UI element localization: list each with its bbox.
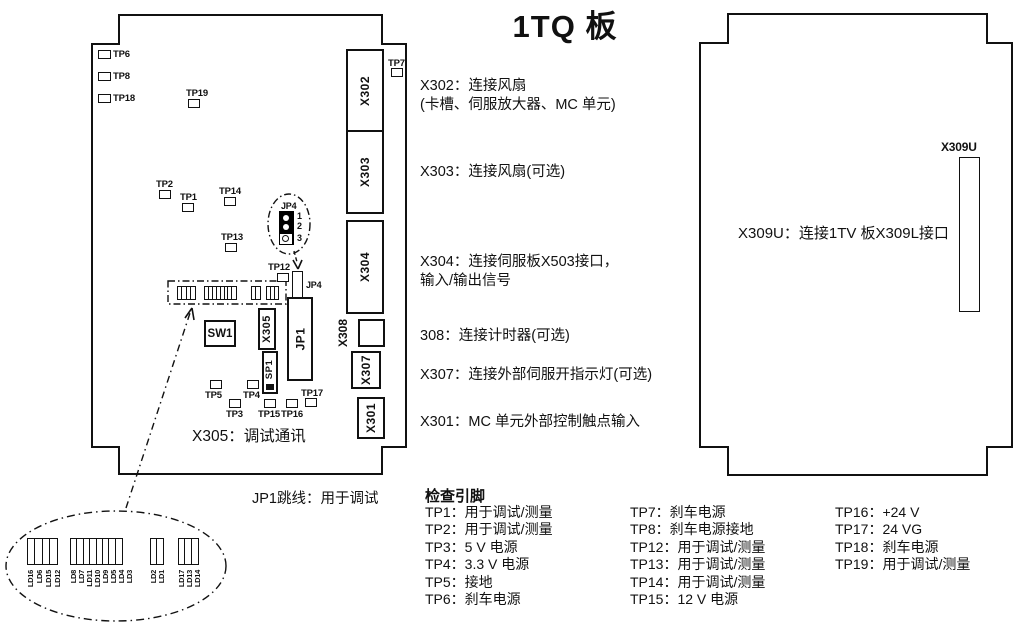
tp1-pad [182,203,194,212]
check-pin-item: TP18：刹车电源 [835,539,970,556]
tp19-label: TP19 [186,88,208,99]
tp6-label: TP6 [113,49,130,60]
led-detail-group-3 [150,538,164,565]
check-pin-item: TP19：用于调试/测量 [835,556,970,573]
led-label: LD3 [125,570,135,600]
annotation-x301-line1: X301：MC 单元外部控制触点输入 [420,413,640,432]
connector-x304-label: X304 [358,252,372,282]
check-pins-col3: TP16：+24 V TP17：24 VG TP18：刹车电源 TP19：用于调… [835,504,970,574]
annotation-x308: 308：连接计时器(可选) [420,327,570,346]
led-label: LD1 [157,570,167,600]
jp4-pin3-dot [282,235,289,242]
tp4-pad [247,380,259,389]
led-cell [49,538,58,565]
component-sw1: SW1 [204,320,236,347]
led-strip-group-4 [266,286,279,300]
led-cell [190,286,196,300]
check-pin-item: TP12：用于调试/测量 [630,539,765,556]
tp7-pad [391,68,403,77]
tp17-pad [305,398,317,407]
annotation-x307-line1: X307：连接外部伺服开指示灯(可选) [420,366,652,385]
tp2-pad [159,190,171,199]
connector-x305-label: X305 [261,315,273,343]
led-strip-group-3 [251,286,261,300]
annotation-x301: X301：MC 单元外部控制触点输入 [420,413,640,432]
connector-x304: X304 [346,220,384,314]
connector-x307-label: X307 [359,355,373,385]
tp1-label: TP1 [180,192,197,203]
check-pins-col1: TP1：用于调试/测量 TP2：用于调试/测量 TP3：5 V 电源 TP4：3… [425,504,553,608]
connector-jp4 [292,271,303,298]
annotation-x302-line1: X302：连接风扇 [420,77,616,96]
connector-jp4-label: JP4 [306,280,321,290]
led-detail-group-4 [178,538,199,565]
jp4-pin2-dot [283,224,289,230]
connector-x309u-label: X309U [941,140,977,154]
tp12-pad [277,273,289,282]
tp3-label: TP3 [226,409,243,420]
annotation-x303: X303：连接风扇(可选) [420,163,565,182]
check-pin-item: TP6：刹车电源 [425,591,553,608]
jp4-jumper-block [279,211,294,245]
connector-x308-label: X308 [336,313,348,353]
connector-x302-label: X302 [358,75,372,105]
connector-x303-label: X303 [358,157,372,187]
connector-x303: X303 [346,130,384,214]
check-pin-item: TP8：刹车电源接地 [630,521,765,538]
annotation-x302-line2: (卡槽、伺服放大器、MC 单元) [420,96,616,115]
led-leader-arrow-head [185,308,194,320]
tp6-pad [98,50,111,59]
tp8-label: TP8 [113,71,130,82]
board-diagram: 1TQ 板 TP6 TP8 TP18 TP19 TP2 TP1 TP14 TP1… [0,0,1025,626]
jp4-pin3-cell [280,234,292,244]
check-pin-item: TP13：用于调试/测量 [630,556,765,573]
jp4-arrow-shaft [294,251,297,262]
check-pin-item: TP3：5 V 电源 [425,539,553,556]
tp5-pad [210,380,222,389]
check-pin-item: TP16：+24 V [835,504,970,521]
led-strip-group-1 [177,286,196,300]
tp8-pad [98,72,111,81]
connector-x309u [959,157,980,312]
led-label: LD12 [53,570,63,600]
led-detail-group-2 [70,538,123,565]
led-cell [191,538,199,565]
connector-x301-label: X301 [364,403,378,433]
component-sw1-label: SW1 [208,328,233,340]
tp4-label: TP4 [243,390,260,401]
connector-sp1: SP1 [262,351,278,394]
tp19-pad [188,99,200,108]
check-pin-item: TP2：用于调试/测量 [425,521,553,538]
led-cell [156,538,164,565]
tp15-pad [264,399,276,408]
tp18-label: TP18 [113,93,135,104]
tp5-label: TP5 [205,390,222,401]
jp4-pin3-number: 3 [297,233,302,243]
tp12-label: TP12 [268,262,290,273]
tp2-label: TP2 [156,179,173,190]
led-cell [115,538,123,565]
led-cell [231,286,237,300]
check-pin-item: TP17：24 VG [835,521,970,538]
tp16-pad [286,399,298,408]
annotation-x304-line2: 输入/输出信号 [420,272,618,291]
led-cell [274,286,280,300]
check-pin-item: TP14：用于调试/测量 [630,574,765,591]
led-label: LD14 [193,570,203,600]
check-pin-item: TP5：接地 [425,574,553,591]
tp3-pad [229,399,241,408]
connector-x301: X301 [357,397,385,439]
tp13-label: TP13 [221,232,243,243]
check-pin-item: TP7：刹车电源 [630,504,765,521]
page-title: 1TQ 板 [455,1,675,46]
x309u-note: X309U：连接1TV 板X309L接口 [738,222,949,243]
connector-jp1-label: JP1 [293,328,307,351]
tp13-pad [225,243,237,252]
check-pin-item: TP15：12 V 电源 [630,591,765,608]
sp1-pin1-marker [266,384,274,390]
x305-caption: X305：调试通讯 [192,424,306,446]
connector-x307: X307 [351,351,381,389]
tp15-label: TP15 [258,409,280,420]
jp1-note: JP1跳线：用于调试 [252,487,379,508]
connector-x302: X302 [346,49,384,132]
annotation-x307: X307：连接外部伺服开指示灯(可选) [420,366,652,385]
jp4-pin1-dot [283,215,289,221]
jp4-pin1-number: 1 [297,211,302,221]
tp16-label: TP16 [281,409,303,420]
annotation-x303-line1: X303：连接风扇(可选) [420,163,565,182]
annotation-x302: X302：连接风扇 (卡槽、伺服放大器、MC 单元) [420,77,616,114]
connector-x305: X305 [258,308,276,350]
annotation-x304: X304：连接伺服板X503接口， 输入/输出信号 [420,253,618,290]
connector-sp1-label: SP1 [265,360,276,379]
connector-jp1: JP1 [287,297,313,381]
connector-x308 [358,319,385,347]
led-cell [255,286,261,300]
led-leader-line [126,313,190,508]
tp14-pad [224,197,236,206]
check-pin-item: TP1：用于调试/测量 [425,504,553,521]
led-strip-group-2 [204,286,237,300]
led-detail-group-1 [27,538,58,565]
annotation-x308-line1: 308：连接计时器(可选) [420,327,570,346]
check-pins-col2: TP7：刹车电源 TP8：刹车电源接地 TP12：用于调试/测量 TP13：用于… [630,504,765,608]
annotation-x304-line1: X304：连接伺服板X503接口， [420,253,618,272]
check-pins-header: 检查引脚 [425,485,485,506]
tp18-pad [98,94,111,103]
jp4-pin2-number: 2 [297,221,302,231]
jp4-arrow-head [293,260,302,269]
led-detail-ellipse [6,511,226,621]
jp4-detail-label: JP4 [281,201,296,211]
check-pin-item: TP4：3.3 V 电源 [425,556,553,573]
tp14-label: TP14 [219,186,241,197]
